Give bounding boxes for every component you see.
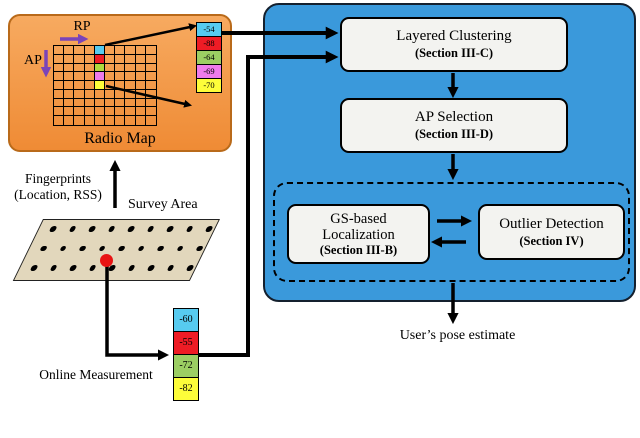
grid-cell (136, 116, 146, 125)
grid-cell (115, 64, 125, 73)
layered-clustering-subtitle: (Section III-C) (415, 46, 493, 62)
grid-cell-colored (95, 72, 105, 81)
ap-selection-subtitle: (Section III-D) (415, 127, 493, 143)
grid-cell (125, 46, 135, 55)
grid-cell (136, 90, 146, 99)
survey-dot (49, 226, 57, 232)
sample-point-red-dot (100, 254, 113, 267)
grid-cell (125, 107, 135, 116)
grid-cell (85, 90, 95, 99)
grid-cell (146, 90, 156, 99)
grid-cell (125, 64, 135, 73)
grid-cell (74, 99, 84, 108)
grid-cell (136, 72, 146, 81)
survey-dot (186, 265, 194, 271)
grid-cell (74, 116, 84, 125)
fingerprints-label: Fingerprints (Location, RSS) (2, 171, 114, 203)
grid-cell (64, 46, 74, 55)
online-rss-vector: -60-55-72-82 (173, 308, 199, 401)
users-pose-estimate-label: User’s pose estimate (375, 328, 540, 344)
survey-dot (157, 246, 165, 252)
rp-axis-label: RP (66, 19, 98, 35)
radio-map-grid (53, 45, 157, 126)
grid-cell (105, 64, 115, 73)
survey-dot (88, 226, 96, 232)
survey-dot (69, 226, 77, 232)
grid-cell (64, 81, 74, 90)
grid-cell (74, 81, 84, 90)
grid-cell (105, 116, 115, 125)
grid-cell (146, 99, 156, 108)
rss-value-cell: -69 (196, 64, 222, 79)
grid-cell (146, 107, 156, 116)
grid-cell (105, 99, 115, 108)
survey-dot (127, 226, 135, 232)
ap-selection-title: AP Selection (415, 108, 493, 127)
rss-value-cell: -54 (196, 22, 222, 37)
survey-dot (59, 246, 67, 252)
survey-dot (147, 265, 155, 271)
fingerprints-line2: (Location, RSS) (2, 187, 114, 203)
grid-cell-colored (95, 81, 105, 90)
grid-cell (54, 116, 64, 125)
grid-cell (136, 99, 146, 108)
grid-cell (64, 90, 74, 99)
rss-value-cell: -70 (196, 78, 222, 93)
rss-value-cell: -72 (173, 354, 199, 378)
grid-cell (95, 99, 105, 108)
grid-cell (54, 99, 64, 108)
rss-value-cell: -64 (196, 50, 222, 65)
grid-cell (136, 107, 146, 116)
survey-dot (108, 226, 116, 232)
grid-cell (105, 81, 115, 90)
grid-cell (136, 55, 146, 64)
grid-cell (136, 64, 146, 73)
grid-cell-colored (95, 46, 105, 55)
grid-cell (54, 90, 64, 99)
grid-cell (115, 72, 125, 81)
grid-cell-colored (95, 64, 105, 73)
survey-dot (79, 246, 87, 252)
grid-cell (115, 46, 125, 55)
rss-value-cell: -82 (173, 377, 199, 401)
grid-cell (85, 81, 95, 90)
grid-cell (54, 46, 64, 55)
rss-value-cell: -88 (196, 36, 222, 51)
grid-cell (125, 99, 135, 108)
gs-localization-box: GS-based Localization (Section III-B) (287, 204, 430, 264)
grid-cell (85, 64, 95, 73)
grid-cell (125, 81, 135, 90)
grid-cell (54, 107, 64, 116)
grid-cell (85, 116, 95, 125)
grid-cell (146, 64, 156, 73)
grid-cell (95, 116, 105, 125)
grid-cell (105, 55, 115, 64)
grid-cell (146, 55, 156, 64)
grid-cell (74, 107, 84, 116)
outlier-detection-box: Outlier Detection (Section IV) (478, 204, 625, 260)
survey-dot (147, 226, 155, 232)
rss-value-cell: -60 (173, 308, 199, 332)
grid-cell (85, 107, 95, 116)
grid-cell (146, 116, 156, 125)
grid-cell (146, 46, 156, 55)
grid-cell (146, 72, 156, 81)
survey-dot (137, 246, 145, 252)
survey-dot (40, 246, 48, 252)
grid-cell (125, 90, 135, 99)
rss-value-cell: -55 (173, 331, 199, 355)
grid-cell (54, 72, 64, 81)
survey-dot (118, 246, 126, 252)
fingerprint-rss-vector: -54-88-64-69-70 (196, 22, 222, 93)
survey-dot (166, 226, 174, 232)
grid-cell (115, 107, 125, 116)
grid-cell (64, 116, 74, 125)
grid-cell (54, 81, 64, 90)
survey-dot (196, 246, 204, 252)
grid-cell (74, 55, 84, 64)
outlier-detection-subtitle: (Section IV) (519, 234, 583, 250)
grid-cell (85, 55, 95, 64)
ap-selection-box: AP Selection (Section III-D) (340, 98, 568, 153)
grid-cell (74, 90, 84, 99)
survey-dot (89, 265, 97, 271)
survey-area-label: Survey Area (128, 197, 223, 213)
online-measurement-label: Online Measurement (28, 367, 164, 383)
grid-cell (125, 116, 135, 125)
grid-cell (115, 116, 125, 125)
survey-dot (30, 265, 38, 271)
grid-cell (136, 46, 146, 55)
survey-dot (98, 246, 106, 252)
outlier-detection-title: Outlier Detection (499, 215, 604, 234)
survey-dot (205, 226, 213, 232)
survey-dot (186, 226, 194, 232)
diagram-canvas: RP AP Radio Map -54-88-64-69-70 Fingerpr… (0, 0, 640, 438)
layered-clustering-box: Layered Clustering (Section III-C) (340, 17, 568, 72)
grid-cell (105, 46, 115, 55)
grid-cell (95, 90, 105, 99)
gs-localization-subtitle: (Section III-B) (320, 243, 397, 257)
grid-cell (64, 55, 74, 64)
grid-cell (85, 46, 95, 55)
gs-localization-line1: GS-based (330, 211, 386, 227)
grid-cell (125, 72, 135, 81)
grid-cell (54, 55, 64, 64)
survey-dot (69, 265, 77, 271)
grid-cell (115, 90, 125, 99)
grid-cell (74, 72, 84, 81)
survey-dot (128, 265, 136, 271)
grid-cell (115, 55, 125, 64)
survey-area-parallelogram (13, 219, 220, 281)
fingerprints-line1: Fingerprints (2, 171, 114, 187)
grid-cell (64, 64, 74, 73)
grid-cell (115, 99, 125, 108)
grid-cell (105, 107, 115, 116)
grid-cell (95, 107, 105, 116)
grid-cell (125, 55, 135, 64)
survey-dot (176, 246, 184, 252)
grid-cell (74, 46, 84, 55)
grid-cell (105, 72, 115, 81)
survey-dot (167, 265, 175, 271)
radio-map-title: Radio Map (8, 130, 232, 148)
grid-cell (64, 107, 74, 116)
grid-cell (146, 81, 156, 90)
ap-axis-label: AP (20, 53, 46, 69)
grid-cell (85, 99, 95, 108)
grid-cell-colored (95, 55, 105, 64)
layered-clustering-title: Layered Clustering (396, 27, 511, 46)
gs-localization-line2: Localization (322, 227, 394, 243)
grid-cell (64, 72, 74, 81)
grid-cell (105, 90, 115, 99)
grid-cell (64, 99, 74, 108)
grid-cell (85, 72, 95, 81)
grid-cell (54, 64, 64, 73)
grid-cell (115, 81, 125, 90)
grid-cell (136, 81, 146, 90)
grid-cell (74, 64, 84, 73)
survey-dot (50, 265, 58, 271)
